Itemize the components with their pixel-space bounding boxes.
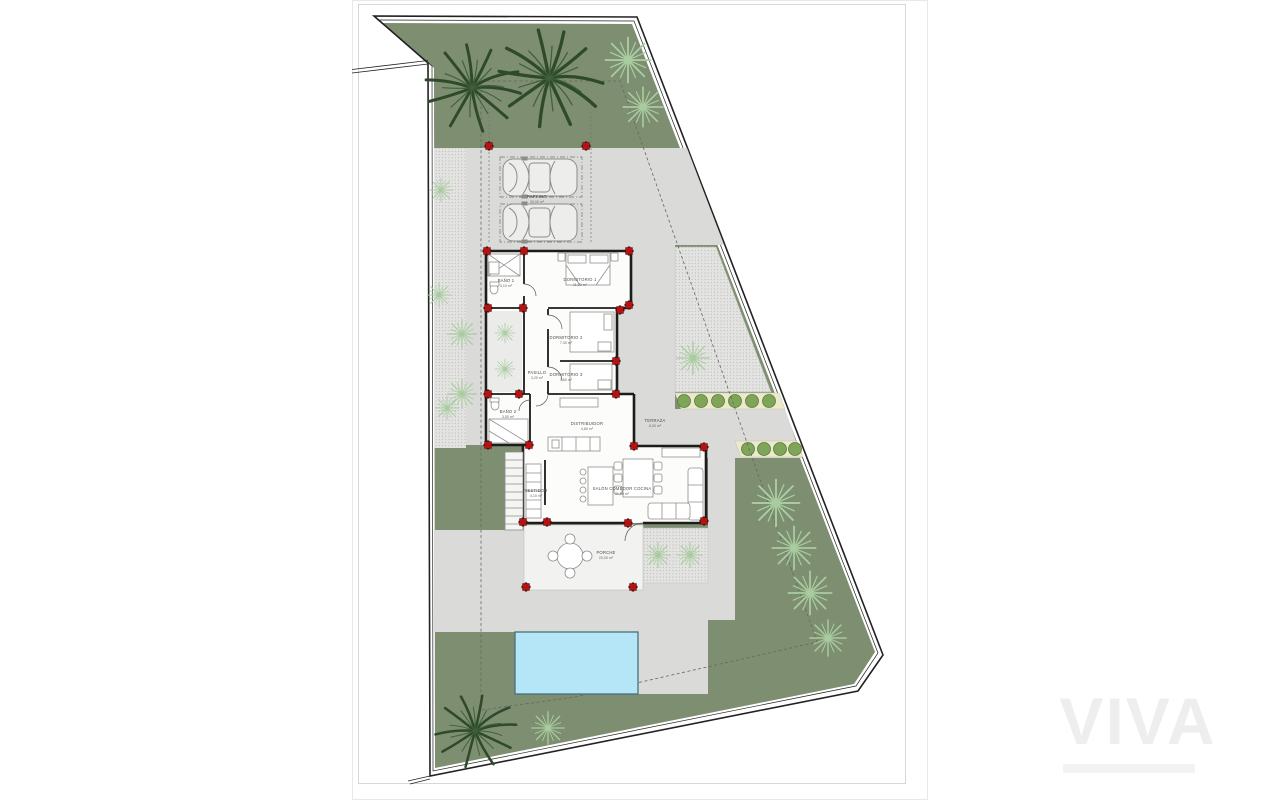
- label-porche: PORCHE: [596, 550, 615, 555]
- watermark-tagline: [1063, 764, 1195, 773]
- svg-text:20,00 m²: 20,00 m²: [599, 556, 614, 560]
- shrub: [810, 620, 846, 656]
- shrub: [429, 178, 452, 201]
- shrub: [772, 526, 815, 569]
- svg-text:30,00 m²: 30,00 m²: [530, 200, 545, 204]
- swimming-pool: [515, 632, 638, 694]
- svg-text:11,20 m²: 11,20 m²: [573, 283, 588, 287]
- label-terraza: TERRAZA: [645, 418, 666, 423]
- shrub: [788, 571, 831, 614]
- site-plan-drawing: PARKING 30,00 m² BAÑO 1 3,10 m² DORMITOR…: [0, 0, 1280, 800]
- svg-text:4,15 m²: 4,15 m²: [530, 494, 543, 498]
- shrub: [495, 323, 515, 343]
- svg-text:3,10 m²: 3,10 m²: [500, 284, 513, 288]
- label-bano1: BAÑO 1: [498, 278, 515, 283]
- label-bano2: BAÑO 2: [500, 409, 517, 414]
- floorplan-page: PARKING 30,00 m² BAÑO 1 3,10 m² DORMITOR…: [0, 0, 1280, 800]
- label-dorm2: DORMITORIO 2: [549, 335, 583, 340]
- stairs: [505, 452, 523, 530]
- shrub: [753, 480, 800, 527]
- shrub: [677, 342, 709, 374]
- svg-text:8,00 m²: 8,00 m²: [649, 424, 662, 428]
- shrub: [448, 320, 477, 349]
- shrub: [427, 283, 450, 306]
- svg-text:3,20 m²: 3,20 m²: [531, 376, 544, 380]
- svg-text:4,80 m²: 4,80 m²: [581, 427, 594, 431]
- car-2: [503, 202, 577, 243]
- label-pasillo: PASILLO: [528, 370, 547, 375]
- shrub: [495, 359, 515, 379]
- label-dorm3: DORMITORIO 3: [549, 372, 583, 377]
- label-dorm1: DORMITORIO 1: [563, 277, 597, 282]
- shrub: [448, 380, 477, 409]
- svg-text:7,30 m²: 7,30 m²: [560, 341, 573, 345]
- label-distribuidor: DISTRIBUIDOR: [571, 421, 603, 426]
- shrub: [606, 38, 651, 83]
- shrub: [435, 396, 458, 419]
- label-vestidor: VESTIDOR: [524, 488, 547, 493]
- viva-watermark: VIVA: [1038, 688, 1238, 754]
- svg-text:31,50 m²: 31,50 m²: [615, 492, 630, 496]
- shrub: [645, 542, 670, 567]
- svg-text:7,60 m²: 7,60 m²: [560, 378, 573, 382]
- shrub: [623, 87, 663, 127]
- shrub: [532, 712, 564, 744]
- shrub: [677, 542, 702, 567]
- label-salon: SALÓN COMEDOR COCINA: [593, 486, 652, 491]
- label-parking: PARKING: [527, 194, 547, 199]
- svg-text:3,50 m²: 3,50 m²: [502, 415, 515, 419]
- car-1: [503, 157, 577, 198]
